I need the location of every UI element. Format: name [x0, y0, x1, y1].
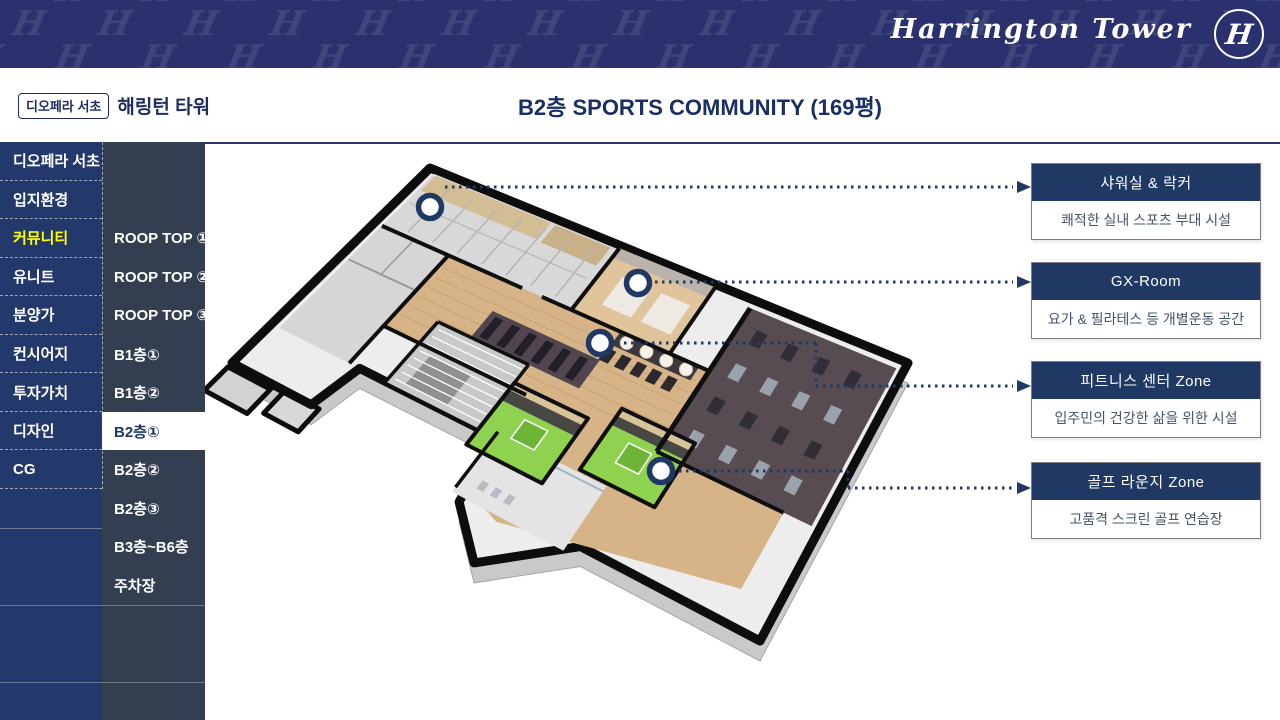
sidebar-item-unit[interactable]: 유니트 — [0, 258, 102, 297]
harrington-tower-wordmark: Harrington Tower — [891, 14, 1192, 45]
sidebar-column-divider — [102, 142, 103, 489]
sidebar-item-rooftop2[interactable]: ROOP TOP ② — [102, 258, 205, 297]
sidebar-item-b2-1-selected[interactable]: B2층① — [102, 412, 205, 451]
marker-gx-room — [627, 272, 650, 295]
project-badge: 디오페라 서초 — [18, 93, 109, 119]
sidebar-item-cg[interactable]: CG — [0, 450, 102, 489]
sidebar-item-b3-b6[interactable]: B3층~B6층 — [102, 527, 205, 566]
sidebar-divider — [0, 528, 102, 529]
sidebar-divider — [0, 605, 205, 606]
callout-title: 골프 라운지 Zone — [1032, 463, 1260, 500]
sidebar-item-rooftop3[interactable]: ROOP TOP ③ — [102, 296, 205, 335]
sidebar-primary-column: 디오페라 서초 입지환경 커뮤니티 유니트 분양가 컨시어지 투자가치 디자인 … — [0, 142, 102, 720]
marker-shower-locker — [419, 196, 442, 219]
sidebar-secondary-column: ROOP TOP ① ROOP TOP ② ROOP TOP ③ B1층① B1… — [102, 142, 205, 720]
monogram-h-icon: H — [1223, 18, 1254, 51]
callout-card-golf: 골프 라운지 Zone 고품격 스크린 골프 연습장 — [1031, 462, 1261, 539]
sidebar-item-investment[interactable]: 투자가치 — [0, 373, 102, 412]
callout-card-gx-room: GX-Room 요가 & 필라테스 등 개별운동 공간 — [1031, 262, 1261, 339]
sidebar-item-dioperaseocho[interactable]: 디오페라 서초 — [0, 142, 102, 181]
callout-title: 샤워실 & 락커 — [1032, 164, 1260, 201]
page-title: B2층 SPORTS COMMUNITY (169평) — [518, 90, 882, 122]
monogram-circle-logo: H — [1214, 9, 1264, 59]
callout-desc: 입주민의 건강한 삶을 위한 시설 — [1032, 399, 1260, 437]
callout-card-fitness: 피트니스 센터 Zone 입주민의 건강한 삶을 위한 시설 — [1031, 361, 1261, 438]
project-line: 디오페라 서초 해링턴 타워 — [18, 92, 210, 119]
sidebar-divider — [0, 682, 205, 683]
callout-card-shower-locker: 샤워실 & 락커 쾌적한 실내 스포츠 부대 시설 — [1031, 163, 1261, 240]
sidebar-item-community[interactable]: 커뮤니티 — [0, 219, 102, 258]
sidebar-spacer — [102, 142, 205, 219]
sidebar-item-rooftop1[interactable]: ROOP TOP ① — [102, 219, 205, 258]
sidebar-item-b2-2[interactable]: B2층② — [102, 450, 205, 489]
sidebar-item-b1-2[interactable]: B1층② — [102, 373, 205, 412]
top-banner: HHHHHHHHHHHHHHHHHHHHHHHHHHHHHHHHHHHHHHHH… — [0, 0, 1280, 68]
callout-desc: 요가 & 필라테스 등 개별운동 공간 — [1032, 300, 1260, 338]
project-name: 해링턴 타워 — [117, 92, 210, 119]
sidebar-item-b2-3[interactable]: B2층③ — [102, 489, 205, 528]
sidebar-item-location[interactable]: 입지환경 — [0, 181, 102, 220]
sidebar-item-concierge[interactable]: 컨시어지 — [0, 335, 102, 374]
callout-title: 피트니스 센터 Zone — [1032, 362, 1260, 399]
callout-desc: 쾌적한 실내 스포츠 부대 시설 — [1032, 201, 1260, 239]
marker-golf-lounge — [650, 460, 673, 483]
sidebar-item-price[interactable]: 분양가 — [0, 296, 102, 335]
sidebar-item-design[interactable]: 디자인 — [0, 412, 102, 451]
slide-main-area: 샤워실 & 락커 쾌적한 실내 스포츠 부대 시설 GX-Room 요가 & 필… — [205, 142, 1280, 720]
sidebar-item-parking[interactable]: 주차장 — [102, 566, 205, 605]
callout-title: GX-Room — [1032, 263, 1260, 300]
header-strip: 디오페라 서초 해링턴 타워 B2층 SPORTS COMMUNITY (169… — [0, 68, 1280, 142]
callout-desc: 고품격 스크린 골프 연습장 — [1032, 500, 1260, 538]
sidebar-nav: 디오페라 서초 입지환경 커뮤니티 유니트 분양가 컨시어지 투자가치 디자인 … — [0, 142, 205, 720]
marker-fitness-center — [589, 332, 612, 355]
sidebar-item-b1-1[interactable]: B1층① — [102, 335, 205, 374]
